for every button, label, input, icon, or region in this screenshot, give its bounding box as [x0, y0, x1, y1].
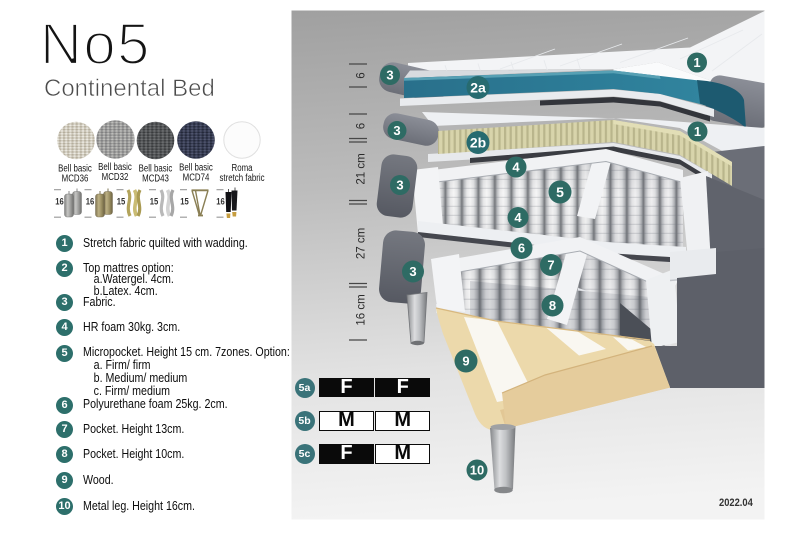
svg-text:16 cm: 16 cm [356, 294, 368, 325]
svg-text:10: 10 [470, 463, 484, 478]
svg-text:8: 8 [549, 298, 556, 313]
svg-text:3: 3 [409, 264, 416, 279]
svg-text:6: 6 [356, 72, 368, 78]
svg-text:1: 1 [694, 124, 701, 139]
svg-text:3: 3 [386, 68, 393, 83]
svg-text:21 cm: 21 cm [356, 153, 368, 184]
svg-text:6: 6 [356, 123, 368, 129]
svg-text:9: 9 [462, 354, 469, 369]
svg-text:27 cm: 27 cm [356, 228, 368, 259]
svg-text:4: 4 [514, 210, 522, 225]
svg-text:1: 1 [693, 55, 700, 70]
svg-text:5: 5 [556, 184, 564, 200]
svg-text:2a: 2a [470, 80, 486, 96]
svg-text:3: 3 [396, 178, 403, 193]
svg-text:3: 3 [393, 123, 400, 138]
svg-text:7: 7 [547, 258, 554, 273]
svg-text:6: 6 [518, 241, 525, 256]
svg-text:2b: 2b [470, 135, 486, 151]
svg-text:4: 4 [512, 160, 520, 175]
